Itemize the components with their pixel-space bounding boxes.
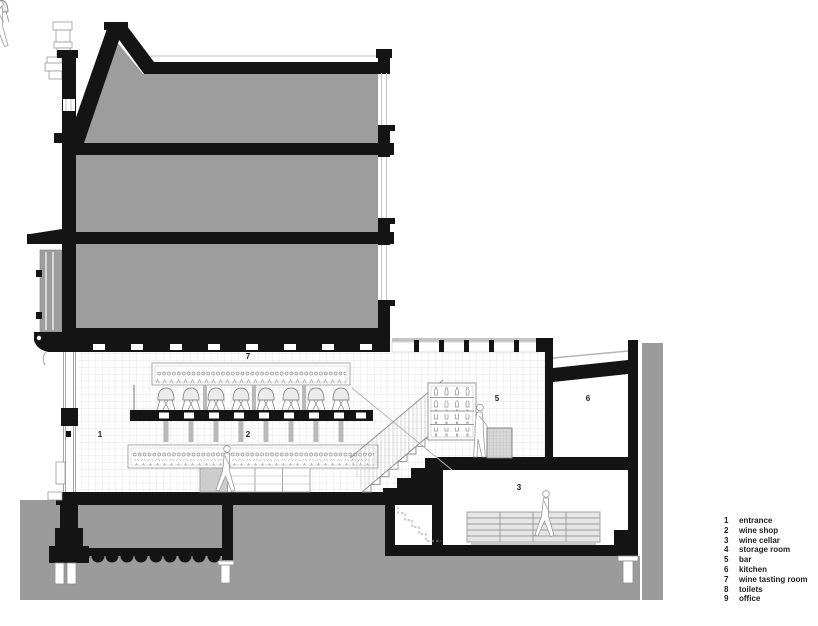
bay-cornice [30, 229, 62, 244]
legend-item: 2wine shop [724, 526, 816, 536]
label-wine-tasting-room: 7 [246, 352, 251, 361]
kitchen-ceiling [553, 360, 628, 382]
first-floor [74, 244, 378, 328]
upper-floors-poche [74, 42, 378, 328]
slab-attic [62, 143, 390, 155]
legend: 1entrance 2wine shop 3wine cellar 4stora… [724, 516, 816, 604]
bay-window [27, 229, 62, 365]
legend-number: 4 [724, 545, 739, 555]
right-wall [628, 340, 638, 558]
left-wall [62, 53, 76, 352]
label-kitchen: 6 [586, 394, 591, 403]
legend-label: wine cellar [739, 536, 816, 546]
cellar-racks [467, 512, 600, 545]
attic-floor [79, 42, 378, 143]
legend-label: entrance [739, 516, 816, 526]
legend-number: 5 [724, 555, 739, 565]
legend-number: 1 [724, 516, 739, 526]
legend-label: toilets [739, 585, 816, 595]
legend-label: wine shop [739, 526, 816, 536]
legend-number: 2 [724, 526, 739, 536]
legend-item: 6kitchen [724, 565, 816, 575]
legend-item: 8toilets [724, 585, 816, 595]
legend-item: 3wine cellar [724, 536, 816, 546]
legend-item: 4storage room [724, 545, 816, 555]
section-drawing-page: 1 2 3 5 6 7 1entrance 2wine shop 3wine c… [0, 0, 818, 626]
bar-kitchen-wall [545, 340, 553, 458]
legend-label: storage room [739, 545, 816, 555]
counter-slots [159, 413, 366, 419]
slab-ground-ceiling [62, 328, 390, 352]
label-wine-shop: 2 [246, 430, 251, 439]
second-floor [74, 155, 378, 232]
architectural-section: 1 2 3 5 6 7 [0, 0, 818, 626]
legend-item: 5bar [724, 555, 816, 565]
legend-label: kitchen [739, 565, 816, 575]
cellar-floor-slab [385, 545, 638, 556]
entrance-step [48, 492, 62, 500]
skylight-roof [392, 338, 553, 352]
flat-roof [144, 62, 390, 74]
legend-number: 7 [724, 575, 739, 585]
label-entrance: 1 [98, 430, 103, 439]
cellar-left-wall [432, 470, 443, 545]
legend-item: 9office [724, 594, 816, 604]
parapet-cap [376, 49, 392, 58]
bar-floor-slab [437, 457, 638, 470]
legend-item: 1entrance [724, 516, 816, 526]
slab-second [62, 232, 390, 244]
bay-bracket [34, 332, 62, 352]
legend-label: office [739, 594, 816, 604]
legend-number: 8 [724, 585, 739, 595]
legend-number: 3 [724, 536, 739, 546]
door-molding [56, 462, 65, 484]
legend-label: wine tasting room [739, 575, 816, 585]
entrance-transom [61, 408, 78, 426]
legend-label: bar [739, 555, 816, 565]
entrance-storefront [48, 352, 78, 500]
label-bar: 5 [495, 394, 500, 403]
legend-number: 9 [724, 594, 739, 604]
label-wine-cellar: 3 [517, 483, 522, 492]
legend-number: 6 [724, 565, 739, 575]
legend-item: 7wine tasting room [724, 575, 816, 585]
